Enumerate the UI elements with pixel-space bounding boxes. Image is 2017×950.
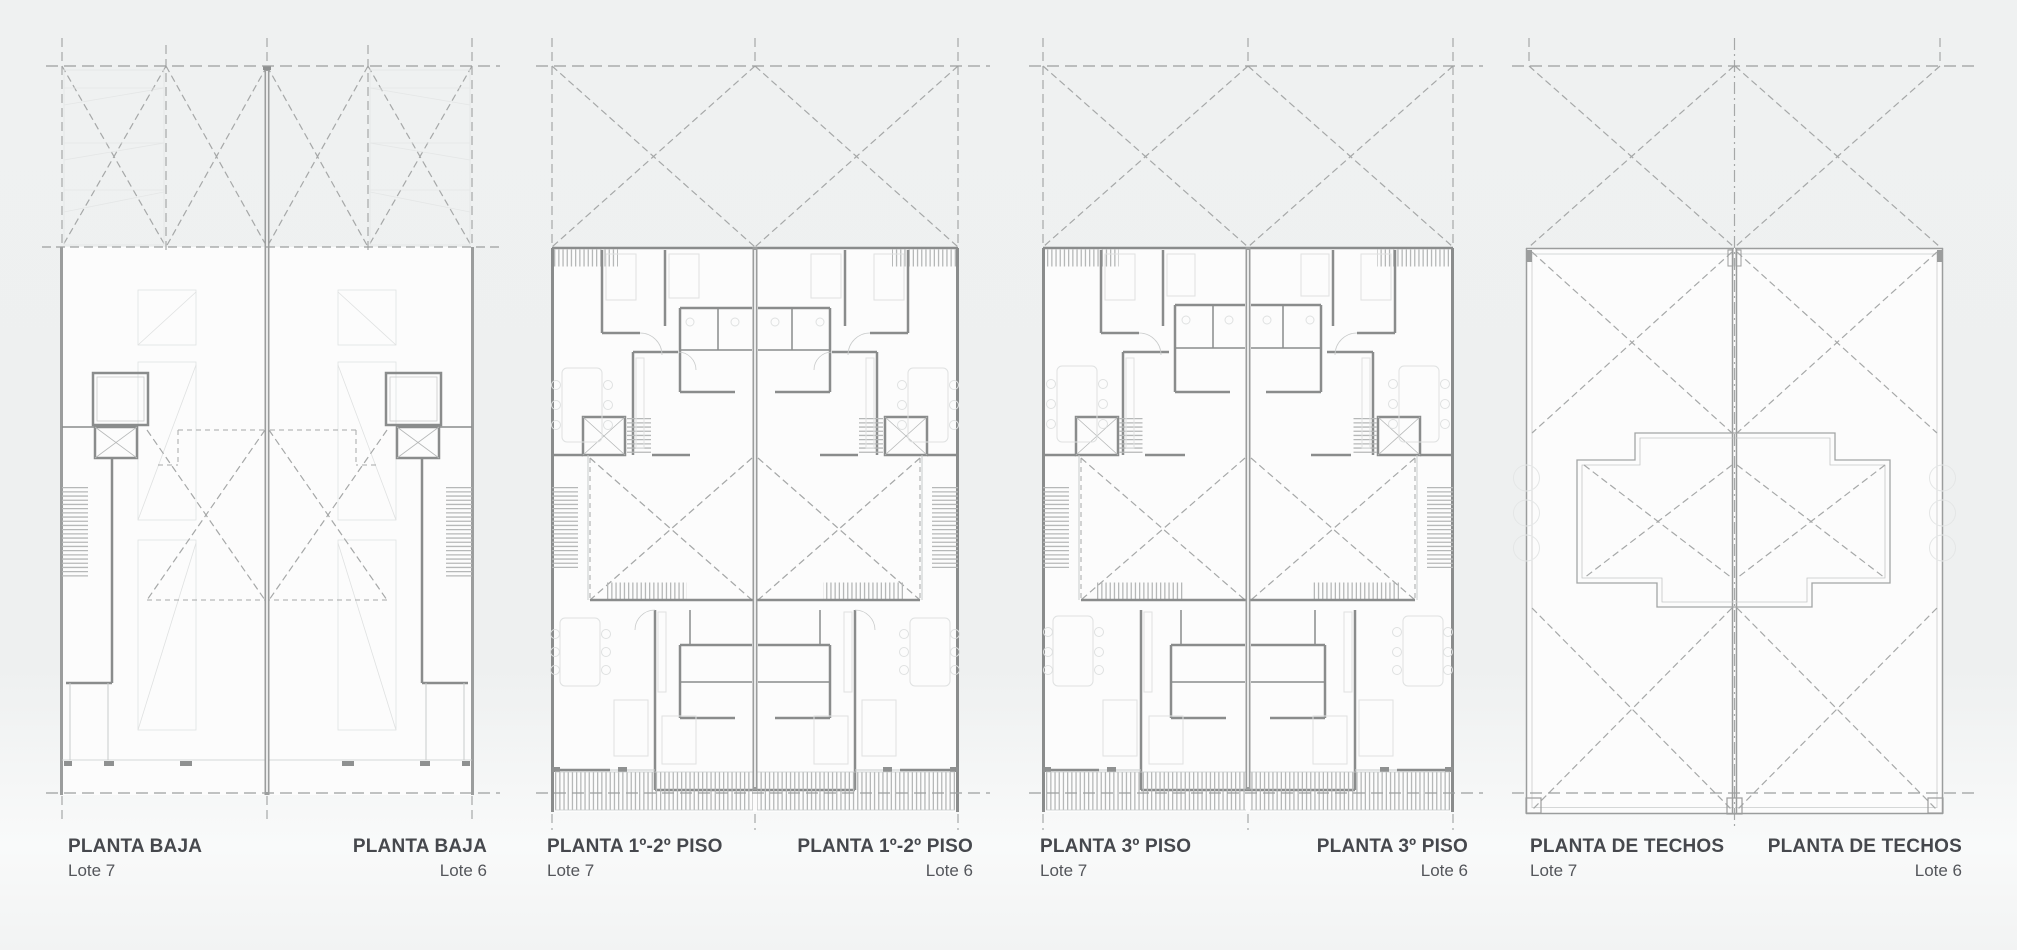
plan-lot-right: Lote 6 (353, 861, 487, 881)
plan-title-right: PLANTA 1º-2º PISO (797, 836, 973, 858)
plan-label-lote6: PLANTA 1º-2º PISO Lote 6 (797, 836, 973, 881)
plan-lot-left: Lote 7 (1040, 861, 1191, 881)
plan-label-lote7: PLANTA DE TECHOS Lote 7 (1530, 836, 1724, 881)
plan-label-lote6: PLANTA DE TECHOS Lote 6 (1768, 836, 1962, 881)
plan-group-planta-baja: PLANTA BAJA Lote 7 PLANTA BAJA Lote 6 (40, 0, 500, 950)
plan-title-right: PLANTA DE TECHOS (1768, 836, 1962, 858)
plan-group-planta-3-piso: PLANTA 3º PISO Lote 7 PLANTA 3º PISO Lot… (1023, 0, 1483, 950)
plan-title-left: PLANTA DE TECHOS (1530, 836, 1724, 858)
plan-lot-right: Lote 6 (1768, 861, 1962, 881)
plan-label-lote7: PLANTA 3º PISO Lote 7 (1040, 836, 1191, 881)
plan-label-lote7: PLANTA BAJA Lote 7 (68, 836, 202, 881)
plan-labels: PLANTA 3º PISO Lote 7 PLANTA 3º PISO Lot… (1023, 836, 1483, 896)
plan-title-right: PLANTA BAJA (353, 836, 487, 858)
floor-plan-drawing-planta-baja (40, 0, 500, 832)
plan-lot-left: Lote 7 (68, 861, 202, 881)
plan-labels: PLANTA 1º-2º PISO Lote 7 PLANTA 1º-2º PI… (530, 836, 990, 896)
plan-title-right: PLANTA 3º PISO (1317, 836, 1468, 858)
plan-group-planta-de-techos: PLANTA DE TECHOS Lote 7 PLANTA DE TECHOS… (1506, 0, 1966, 950)
floor-plan-drawing-planta-de-techos (1506, 0, 1976, 832)
plan-lot-left: Lote 7 (1530, 861, 1724, 881)
floor-plan-drawing-planta-1-2-piso (530, 0, 990, 832)
plan-label-lote6: PLANTA BAJA Lote 6 (353, 836, 487, 881)
plan-title-left: PLANTA 3º PISO (1040, 836, 1191, 858)
plan-lot-left: Lote 7 (547, 861, 723, 881)
plan-labels: PLANTA BAJA Lote 7 PLANTA BAJA Lote 6 (40, 836, 500, 896)
party-wall (753, 247, 758, 790)
plan-group-planta-1-2-piso: PLANTA 1º-2º PISO Lote 7 PLANTA 1º-2º PI… (530, 0, 990, 950)
floor-plans-sheet: { "page": { "background_top": "#eff1f1",… (0, 0, 2017, 950)
plan-title-left: PLANTA 1º-2º PISO (547, 836, 723, 858)
plan-title-left: PLANTA BAJA (68, 836, 202, 858)
floor-plan-drawing-planta-3-piso (1023, 0, 1483, 832)
plan-label-lote7: PLANTA 1º-2º PISO Lote 7 (547, 836, 723, 881)
plan-label-lote6: PLANTA 3º PISO Lote 6 (1317, 836, 1468, 881)
plan-labels: PLANTA DE TECHOS Lote 7 PLANTA DE TECHOS… (1506, 836, 1966, 896)
plan-lot-right: Lote 6 (1317, 861, 1468, 881)
party-wall (1246, 247, 1251, 790)
plan-lot-right: Lote 6 (797, 861, 973, 881)
